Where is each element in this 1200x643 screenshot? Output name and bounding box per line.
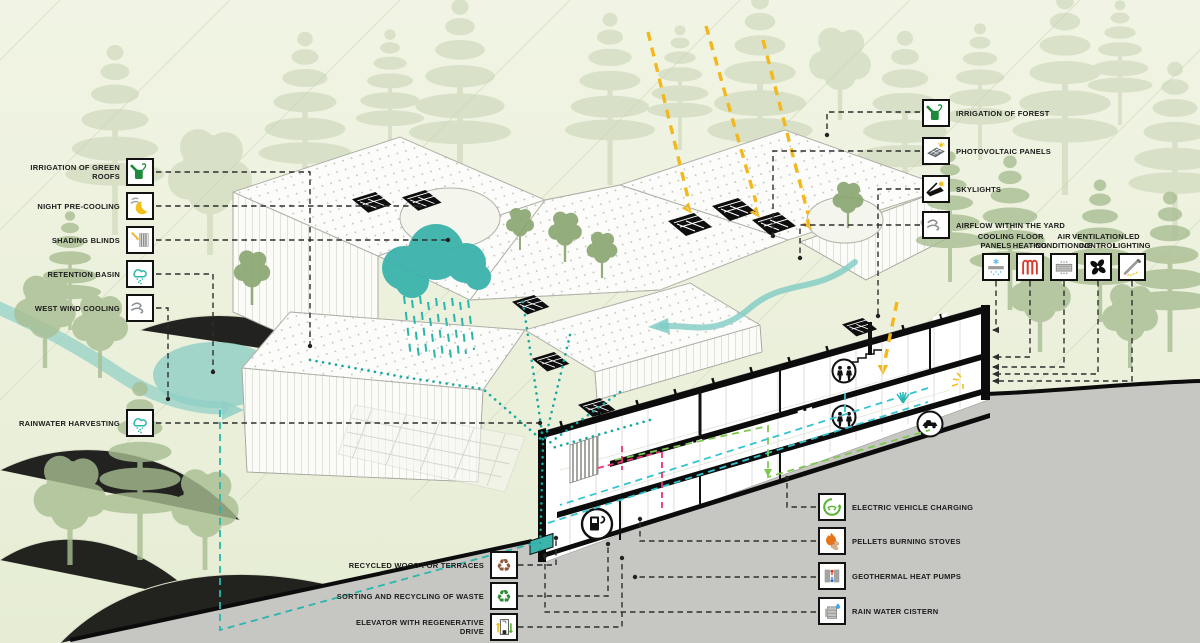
skylight-icon (922, 175, 950, 203)
legend-irrigation-of-green-roofs: IRRIGATION OF GREEN ROOFS (8, 158, 154, 186)
blinds-icon (126, 226, 154, 254)
wind-icon (922, 211, 950, 239)
fuel-pump-icon (582, 509, 612, 539)
sustainability-diagram: IRRIGATION OF GREEN ROOFS NIGHT PRE-COOL… (0, 0, 1200, 643)
legend-sorting-and-recycling-of-waste: SORTING AND RECYCLING OF WASTE ♻ (332, 582, 518, 610)
wind-icon (126, 294, 154, 322)
legend-label: IRRIGATION OF FOREST (956, 109, 1050, 118)
watering-can-icon (126, 158, 154, 186)
rain-cloud-icon (126, 260, 154, 288)
legend-label: RECYCLED WOOD FOR TERRACES (332, 561, 484, 570)
legend-label: GEOTHERMAL HEAT PUMPS (852, 572, 961, 581)
heat-pump-icon (818, 562, 846, 590)
pellets-icon (818, 527, 846, 555)
legend-elevator-with-regenerative-drive: ELEVATOR WITH REGENERATIVE DRIVE (332, 613, 518, 641)
car-icon (918, 412, 943, 437)
legend-label: WEST WIND COOLING (8, 304, 120, 313)
legend-rainwater-harvesting: RAINWATER HARVESTING (8, 409, 154, 437)
led-icon (1118, 253, 1146, 281)
watering-can-icon (922, 99, 950, 127)
ev-charging-icon (818, 493, 846, 521)
legend-shading-blinds: SHADING BLINDS (8, 226, 154, 254)
legend-label: SORTING AND RECYCLING OF WASTE (332, 592, 484, 601)
cistern-icon (818, 597, 846, 625)
legend-label: IRRIGATION OF GREEN ROOFS (8, 163, 120, 181)
legend-night-pre-cooling: NIGHT PRE-COOLING (8, 192, 154, 220)
legend-label: LED LIGHTING (1113, 233, 1150, 250)
pv-panel-icon (922, 137, 950, 165)
legend-label: SKYLIGHTS (956, 185, 1001, 194)
legend-label: AIRFLOW WITHIN THE YARD (956, 221, 1065, 230)
legend-photovoltaic-panels: PHOTOVOLTAIC PANELS (922, 137, 1051, 165)
rain-cloud-icon (126, 409, 154, 437)
legend-label: PHOTOVOLTAIC PANELS (956, 147, 1051, 156)
svg-text:♻: ♻ (496, 556, 512, 576)
legend-pellets-burning-stoves: PELLETS BURNING STOVES (818, 527, 961, 555)
legend-irrigation-of-forest: IRRIGATION OF FOREST (922, 99, 1050, 127)
legend-label: RAINWATER HARVESTING (8, 419, 120, 428)
legend-west-wind-cooling: WEST WIND COOLING (8, 294, 154, 322)
legend-electric-vehicle-charging: ELECTRIC VEHICLE CHARGING (818, 493, 973, 521)
legend-label: RETENTION BASIN (8, 270, 120, 279)
legend-skylights: SKYLIGHTS (922, 175, 1001, 203)
legend-geothermal-heat-pumps: GEOTHERMAL HEAT PUMPS (818, 562, 961, 590)
legend-retention-basin: RETENTION BASIN (8, 260, 154, 288)
recycle-brown-icon: ♻ (490, 551, 518, 579)
legend-led-lighting: LED LIGHTING (1102, 233, 1162, 281)
site-drawing (0, 0, 1200, 643)
legend-label: SHADING BLINDS (8, 236, 120, 245)
legend-label: ELECTRIC VEHICLE CHARGING (852, 503, 973, 512)
recycle-green-icon: ♻ (490, 582, 518, 610)
legend-label: ELEVATOR WITH REGENERATIVE DRIVE (332, 618, 484, 636)
elevator-icon (490, 613, 518, 641)
legend-label: PELLETS BURNING STOVES (852, 537, 961, 546)
svg-text:♻: ♻ (496, 587, 512, 607)
legend-rain-water-cistern: RAIN WATER CISTERN (818, 597, 938, 625)
legend-recycled-wood-for-terraces: RECYCLED WOOD FOR TERRACES ♻ (332, 551, 518, 579)
moon-wind-icon (126, 192, 154, 220)
legend-label: RAIN WATER CISTERN (852, 607, 938, 616)
legend-label: NIGHT PRE-COOLING (8, 202, 120, 211)
